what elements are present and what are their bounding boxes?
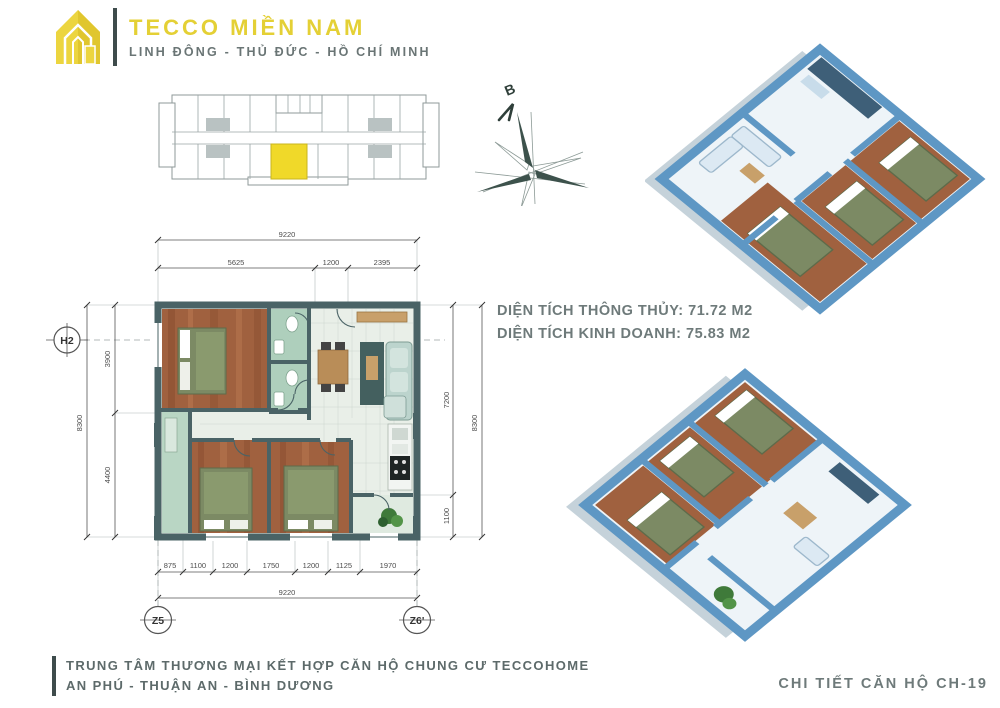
svg-text:9220: 9220 [279,588,296,597]
compass-icon: B [463,72,597,206]
page-canvas: TECCO MIỀN NAM LINH ĐÔNG - THỦ ĐỨC - HỒ … [0,0,1000,708]
svg-text:1100: 1100 [190,561,206,570]
apartment-plan [154,305,420,541]
svg-text:1970: 1970 [380,561,397,570]
render-3d-top [645,24,995,344]
house-logo-icon [55,8,101,66]
render-3d-bottom [555,355,935,660]
building-key-plan [158,88,440,190]
svg-text:5625: 5625 [228,258,245,267]
project-location: AN PHÚ - THUẬN AN - BÌNH DƯƠNG [66,676,590,696]
unit-detail-label: CHI TIẾT CĂN HỘ CH-19 [778,676,988,692]
compass-north-label: B [502,80,517,99]
bed1 [178,328,226,394]
footer-accent-bar [52,656,56,696]
brand-title: TECCO MIỀN NAM [129,15,431,40]
svg-text:8300: 8300 [75,415,84,432]
bed3 [284,466,338,531]
svg-text:875: 875 [164,561,177,570]
brand-subtitle: LINH ĐÔNG - THỦ ĐỨC - HỒ CHÍ MINH [129,45,431,59]
svg-text:7200: 7200 [442,392,451,409]
svg-text:1125: 1125 [336,561,352,570]
project-name: TRUNG TÂM THƯƠNG MẠI KẾT HỢP CĂN HỘ CHUN… [66,656,590,676]
project-footer: TRUNG TÂM THƯƠNG MẠI KẾT HỢP CĂN HỘ CHUN… [52,656,590,696]
render-bottom-plan [585,374,905,636]
kitchen [388,424,412,490]
svg-text:1200: 1200 [323,258,340,267]
floor-plan-2d: 9220 5625 1200 2395 875 1100 1200 1750 1… [40,228,510,640]
svg-text:1100: 1100 [442,508,451,524]
highlighted-unit [271,144,307,179]
brand-divider [113,8,117,66]
svg-text:2395: 2395 [374,258,391,267]
render-top-plan [662,49,979,309]
svg-text:1200: 1200 [222,561,239,570]
bed2 [200,468,252,531]
brand-header: TECCO MIỀN NAM LINH ĐÔNG - THỦ ĐỨC - HỒ … [55,8,431,66]
svg-text:9220: 9220 [279,230,296,239]
svg-text:4400: 4400 [103,467,112,484]
svg-text:1200: 1200 [303,561,320,570]
axis-z6: Z6' [410,615,425,627]
axis-z5: Z5 [152,615,164,627]
svg-text:3900: 3900 [103,351,112,368]
svg-text:1750: 1750 [263,561,280,570]
axis-h2: H2 [60,335,74,347]
svg-text:8300: 8300 [470,415,479,432]
